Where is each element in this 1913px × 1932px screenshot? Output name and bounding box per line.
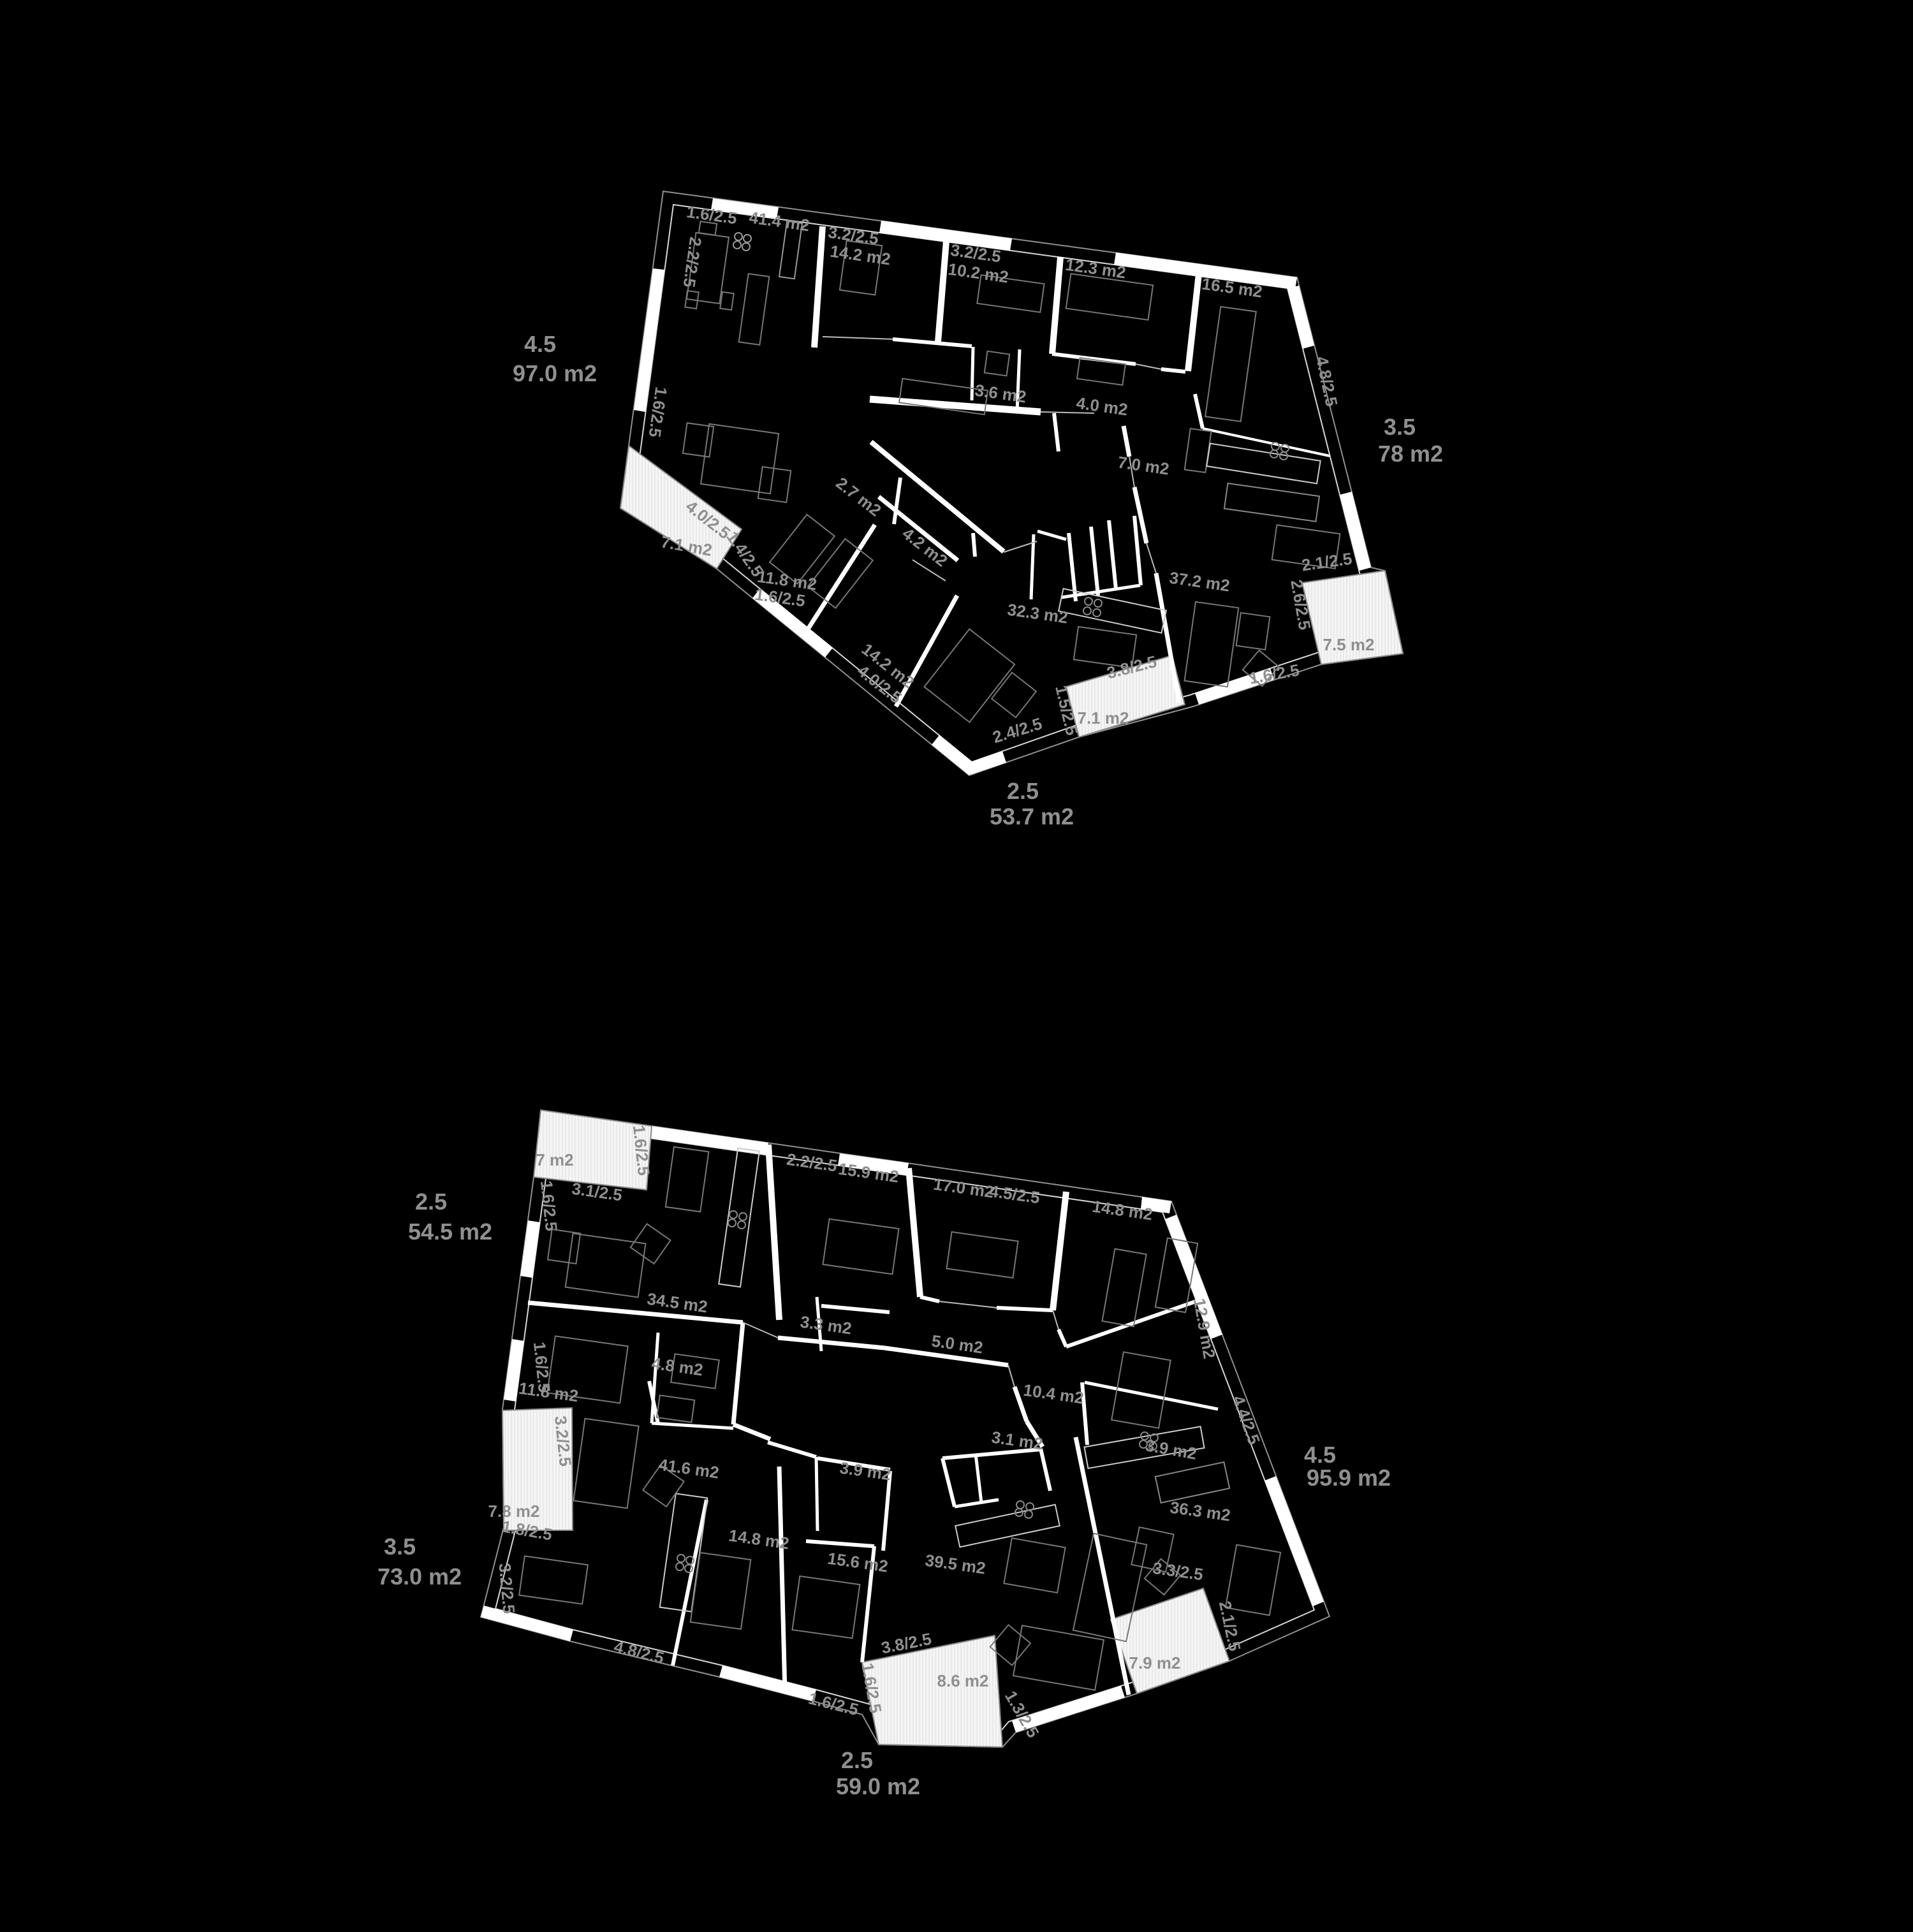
svg-text:3.5: 3.5: [1384, 414, 1416, 440]
svg-text:2.5: 2.5: [841, 1747, 873, 1773]
svg-text:2.5: 2.5: [1007, 778, 1039, 804]
svg-text:78 m2: 78 m2: [1378, 441, 1443, 467]
svg-text:73.0 m2: 73.0 m2: [377, 1563, 462, 1590]
svg-text:7.1 m2: 7.1 m2: [1078, 708, 1129, 728]
svg-text:53.7 m2: 53.7 m2: [990, 803, 1074, 830]
svg-text:3.5: 3.5: [384, 1533, 416, 1560]
svg-text:7.9 m2: 7.9 m2: [1129, 1653, 1181, 1672]
svg-text:54.5 m2: 54.5 m2: [408, 1218, 492, 1245]
svg-text:95.9 m2: 95.9 m2: [1307, 1465, 1391, 1491]
svg-text:2.5: 2.5: [415, 1189, 447, 1215]
svg-text:4.5: 4.5: [1304, 1442, 1336, 1468]
svg-text:4.5: 4.5: [524, 331, 556, 357]
svg-text:59.0 m2: 59.0 m2: [836, 1773, 920, 1799]
svg-text:97.0 m2: 97.0 m2: [513, 360, 597, 386]
svg-text:8.6 m2: 8.6 m2: [937, 1671, 989, 1690]
svg-text:7.5 m2: 7.5 m2: [1323, 635, 1375, 654]
svg-text:7 m2: 7 m2: [536, 1150, 573, 1169]
